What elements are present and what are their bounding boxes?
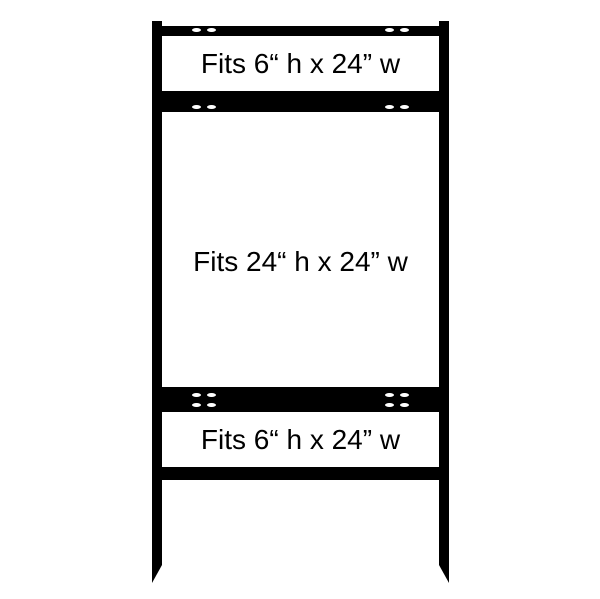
rivet-hole xyxy=(400,105,409,109)
rivet-hole xyxy=(400,393,409,397)
rivet-hole xyxy=(385,28,394,32)
top-panel: Fits 6“ h x 24” w xyxy=(162,36,439,91)
right-stake-tip xyxy=(439,565,449,583)
rivet-hole xyxy=(192,105,201,109)
bottom-panel-label: Fits 6“ h x 24” w xyxy=(201,426,400,454)
sign-frame: Fits 6“ h x 24” w Fits 24“ h x 24” w Fit… xyxy=(0,0,600,599)
rivet-hole xyxy=(385,105,394,109)
lower-crossbar xyxy=(152,387,449,412)
middle-panel: Fits 24“ h x 24” w xyxy=(162,112,439,387)
rivet-hole xyxy=(207,393,216,397)
top-panel-label: Fits 6“ h x 24” w xyxy=(201,50,400,78)
rivet-hole xyxy=(207,28,216,32)
rivet-hole xyxy=(192,28,201,32)
rivet-hole xyxy=(385,403,394,407)
rivet-hole xyxy=(192,403,201,407)
rivet-hole xyxy=(400,28,409,32)
middle-panel-label: Fits 24“ h x 24” w xyxy=(193,248,408,276)
rivet-hole xyxy=(192,393,201,397)
rivet-hole xyxy=(207,403,216,407)
bottom-rail xyxy=(152,467,449,480)
rivet-hole xyxy=(400,403,409,407)
bottom-panel: Fits 6“ h x 24” w xyxy=(162,412,439,467)
rivet-hole xyxy=(385,393,394,397)
left-stake-tip xyxy=(152,565,162,583)
rivet-hole xyxy=(207,105,216,109)
